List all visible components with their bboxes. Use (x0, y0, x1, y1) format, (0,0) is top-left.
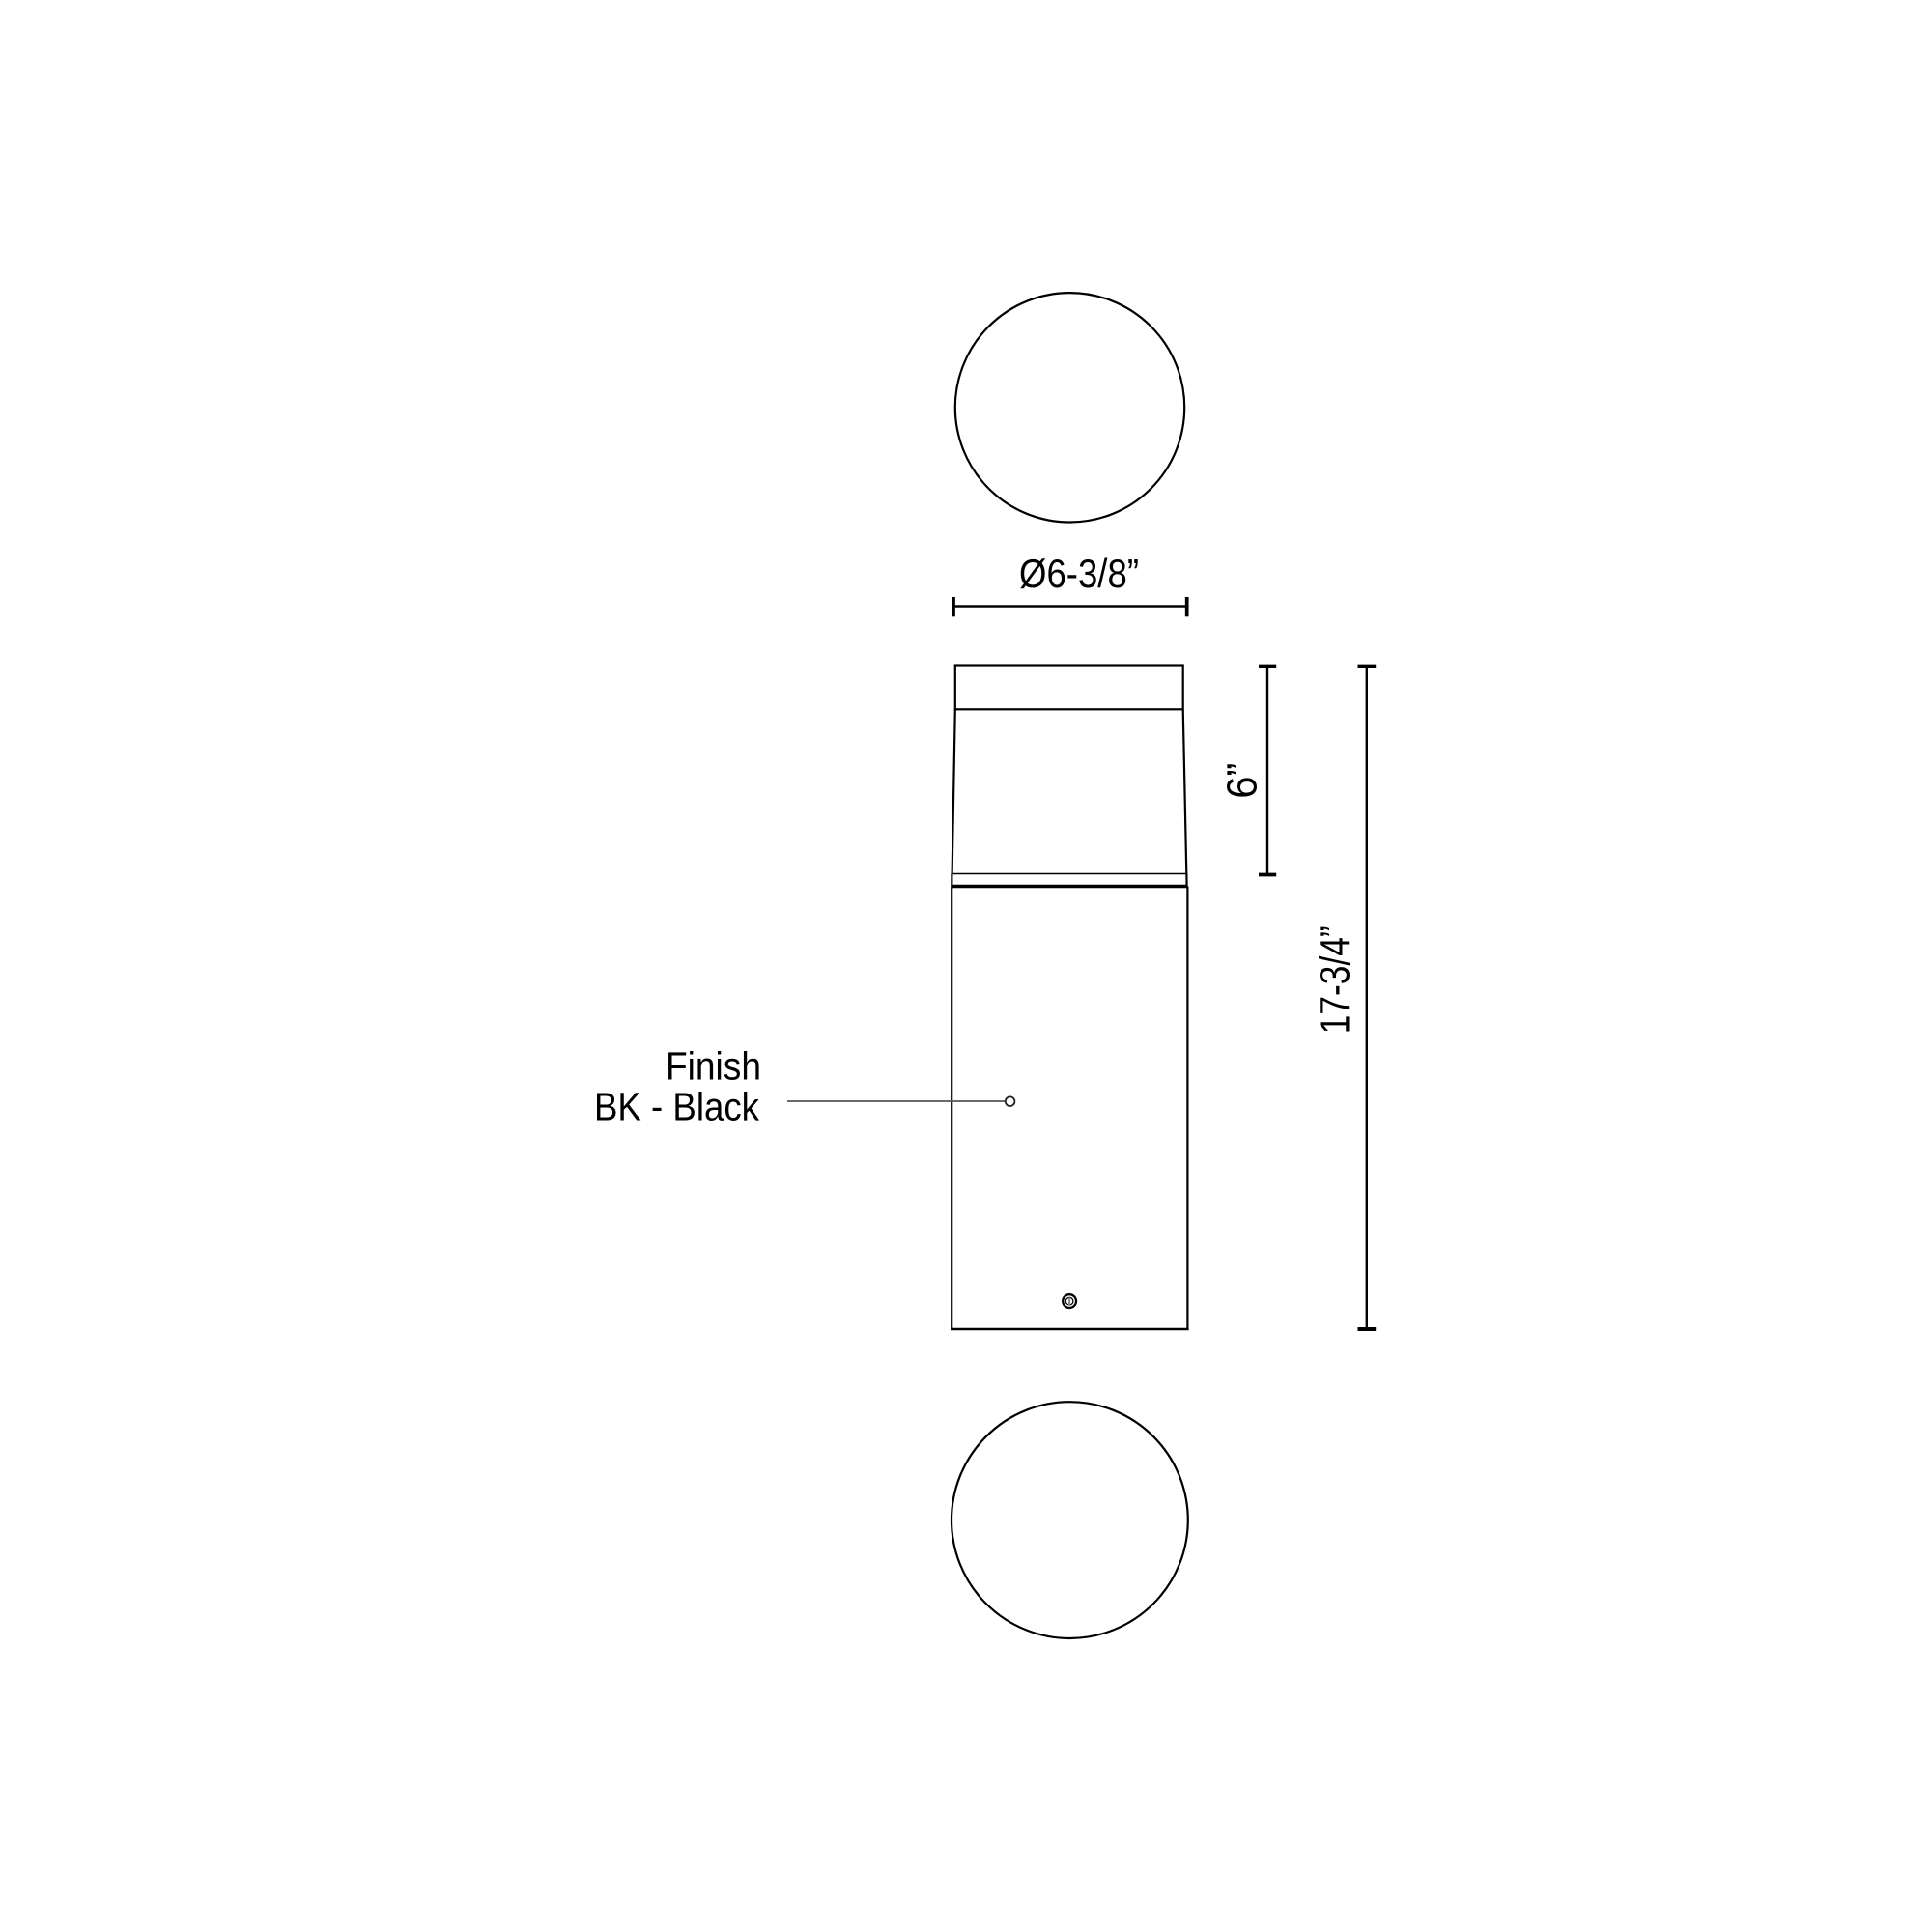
svg-text:Ø6-3/8”: Ø6-3/8” (1019, 551, 1139, 596)
svg-text:17-3/4”: 17-3/4” (1313, 925, 1359, 1034)
svg-text:6”: 6” (1220, 763, 1266, 799)
svg-text:Finish: Finish (666, 1043, 761, 1088)
svg-text:BK - Black: BK - Black (594, 1085, 759, 1129)
